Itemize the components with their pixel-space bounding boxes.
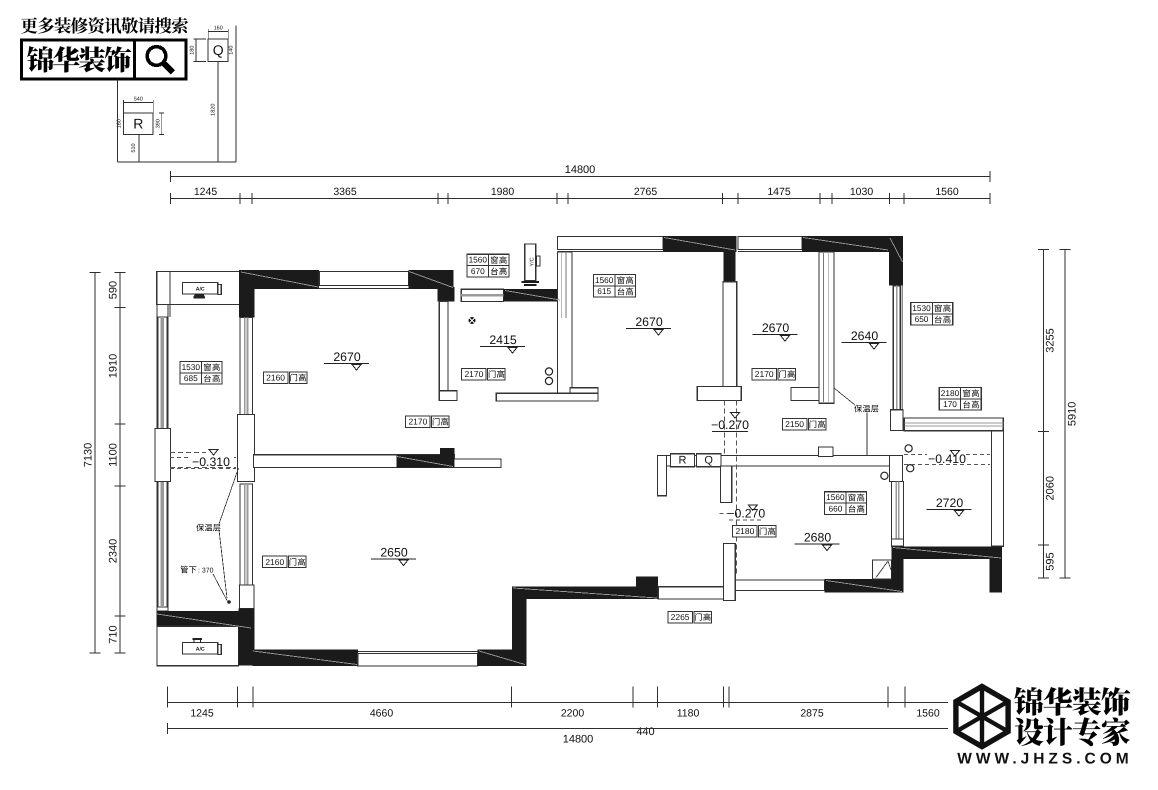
svg-text:2180: 2180: [735, 526, 754, 536]
svg-text:−0.410: −0.410: [928, 452, 966, 466]
svg-text:660: 660: [828, 503, 842, 513]
svg-text:2170: 2170: [464, 369, 483, 379]
svg-text:1910: 1910: [108, 354, 120, 378]
svg-text:2720: 2720: [936, 496, 964, 510]
svg-text:2060: 2060: [1045, 476, 1057, 500]
svg-text:2415: 2415: [489, 333, 517, 347]
svg-text:1245: 1245: [194, 186, 218, 198]
svg-text:1180: 1180: [677, 708, 700, 720]
svg-text:140: 140: [228, 46, 234, 55]
svg-text:1560: 1560: [935, 186, 959, 198]
svg-text:R: R: [679, 455, 687, 467]
svg-text:A/C: A/C: [196, 647, 205, 653]
svg-text:2650: 2650: [380, 546, 408, 560]
svg-text:3365: 3365: [333, 186, 357, 198]
svg-text:540: 540: [134, 97, 143, 103]
svg-text:4660: 4660: [370, 708, 394, 720]
svg-text:2180: 2180: [941, 388, 960, 398]
svg-text:2670: 2670: [635, 315, 663, 329]
svg-text:7130: 7130: [83, 443, 95, 467]
svg-text:590: 590: [108, 281, 120, 299]
svg-text:2640: 2640: [851, 329, 879, 343]
svg-text:14800: 14800: [565, 164, 596, 176]
svg-text:1530: 1530: [182, 362, 201, 372]
svg-text:1820: 1820: [210, 104, 216, 116]
svg-text:R: R: [133, 116, 143, 132]
svg-text:2160: 2160: [265, 557, 284, 567]
svg-text:685: 685: [184, 373, 198, 383]
svg-text:2170: 2170: [408, 417, 427, 427]
svg-text:1980: 1980: [491, 186, 515, 198]
svg-text:−0.310: −0.310: [192, 455, 230, 469]
svg-text:WWW.JHZS.COM: WWW.JHZS.COM: [957, 751, 1132, 768]
svg-text:170: 170: [943, 399, 957, 409]
svg-text:710: 710: [108, 625, 120, 643]
svg-text:−0.270: −0.270: [711, 418, 749, 432]
svg-text:2670: 2670: [762, 321, 790, 335]
svg-text:1030: 1030: [850, 186, 874, 198]
svg-text:160: 160: [214, 26, 223, 32]
svg-text:2160: 2160: [266, 373, 285, 383]
svg-text:2150: 2150: [785, 419, 804, 429]
svg-text:−0.270: −0.270: [727, 507, 765, 521]
svg-text:2170: 2170: [755, 369, 774, 379]
svg-text:Q: Q: [704, 455, 713, 467]
svg-text:1560: 1560: [595, 275, 614, 285]
svg-text:1560: 1560: [916, 708, 940, 720]
svg-text:1100: 1100: [108, 443, 120, 467]
svg-text:595: 595: [1045, 552, 1057, 570]
svg-text:650: 650: [915, 314, 929, 324]
svg-text:1475: 1475: [767, 186, 791, 198]
svg-text:670: 670: [471, 266, 485, 276]
svg-text:1560: 1560: [826, 492, 845, 502]
svg-text:1245: 1245: [190, 708, 214, 720]
svg-text:2200: 2200: [561, 708, 585, 720]
svg-text:615: 615: [597, 286, 611, 296]
svg-text:: 370: : 370: [198, 568, 214, 575]
svg-text:2265: 2265: [671, 612, 690, 622]
svg-text:2765: 2765: [634, 186, 658, 198]
svg-text:Q: Q: [213, 42, 224, 58]
svg-text:A/C: A/C: [196, 287, 205, 293]
svg-text:390: 390: [155, 119, 161, 128]
svg-text:2670: 2670: [333, 350, 361, 364]
svg-text:14800: 14800: [563, 734, 594, 746]
svg-text:1560: 1560: [469, 255, 488, 265]
svg-text:3255: 3255: [1045, 328, 1057, 352]
svg-text:2680: 2680: [804, 531, 832, 545]
svg-text:1530: 1530: [912, 303, 931, 313]
svg-text:2340: 2340: [108, 539, 120, 563]
svg-text:Y/C: Y/C: [530, 257, 536, 266]
svg-text:5910: 5910: [1067, 402, 1079, 426]
svg-text:510: 510: [131, 143, 137, 152]
svg-text:180: 180: [190, 46, 196, 55]
svg-text:2875: 2875: [800, 708, 824, 720]
